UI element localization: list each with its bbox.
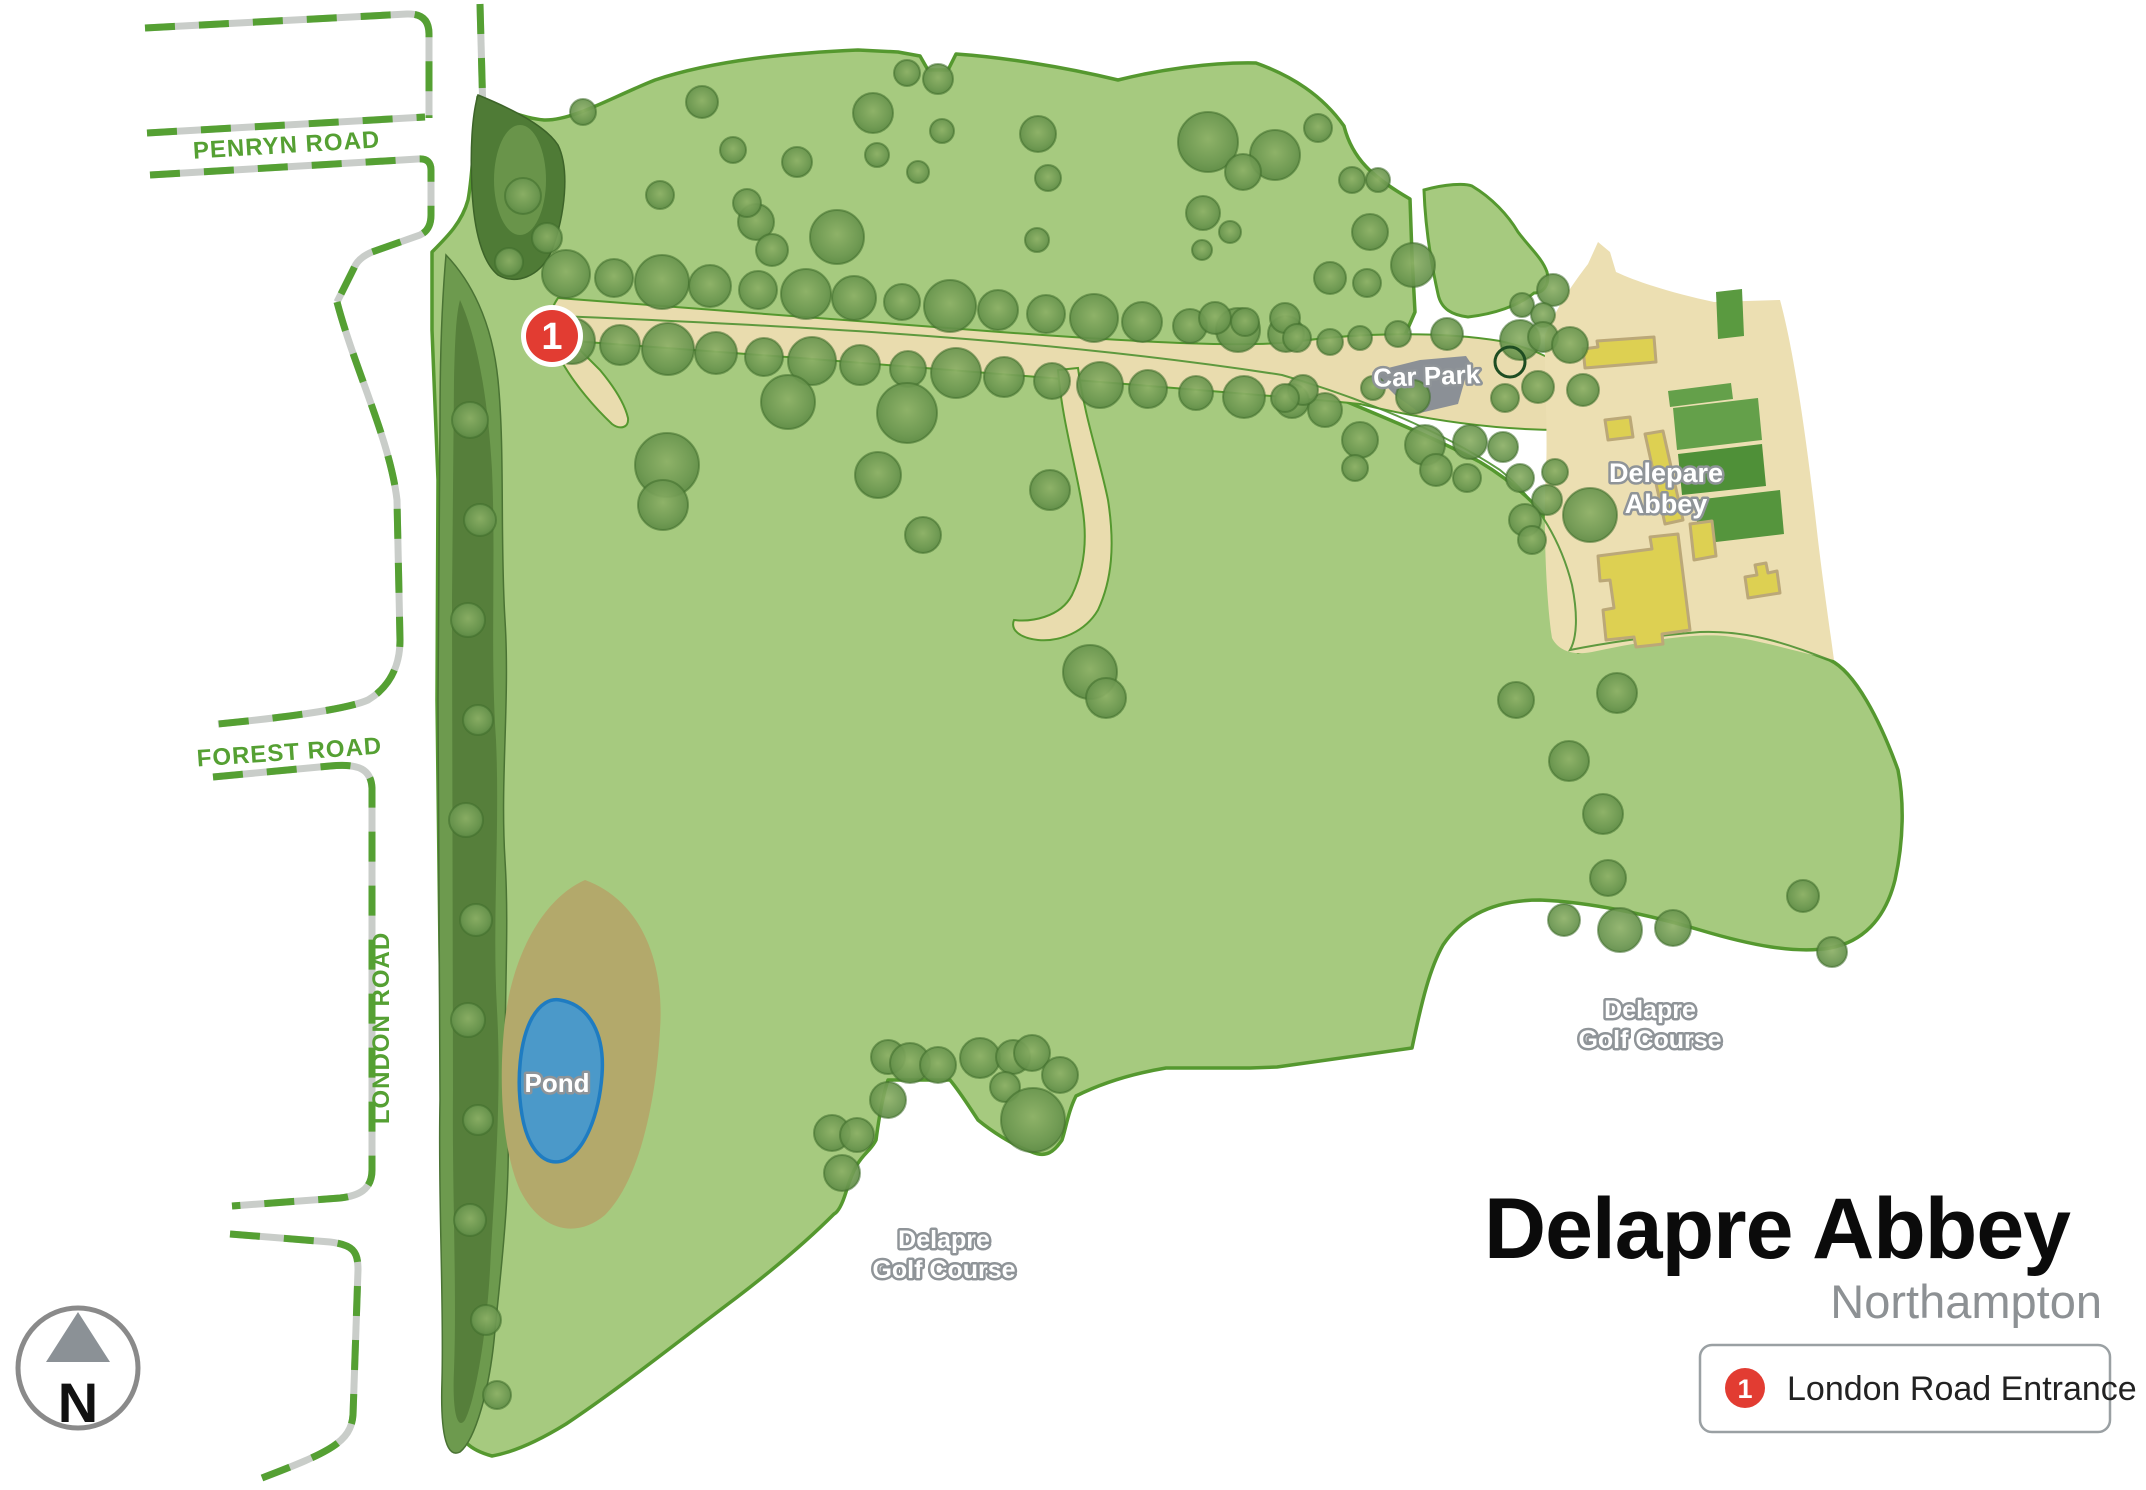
tree-icon bbox=[695, 332, 737, 374]
tree-icon bbox=[1035, 165, 1061, 191]
tree-icon bbox=[1122, 302, 1162, 342]
tree-icon bbox=[463, 705, 493, 735]
map-page: PENRYN ROAD FOREST ROAD LONDON ROAD Car … bbox=[0, 0, 2146, 1490]
tree-icon bbox=[1366, 168, 1390, 192]
tree-icon bbox=[930, 119, 954, 143]
tree-icon bbox=[782, 147, 812, 177]
abbey-label-line1: Delepare bbox=[1609, 458, 1723, 488]
tree-icon bbox=[1420, 454, 1452, 486]
building-small-mid bbox=[1690, 521, 1716, 560]
tree-icon bbox=[1042, 1057, 1078, 1093]
tree-icon bbox=[542, 250, 590, 298]
park-map: PENRYN ROAD FOREST ROAD LONDON ROAD Car … bbox=[0, 0, 2146, 1490]
tree-icon bbox=[905, 517, 941, 553]
tree-icon bbox=[1304, 114, 1332, 142]
tree-icon bbox=[865, 143, 889, 167]
tree-icon bbox=[505, 178, 541, 214]
tree-icon bbox=[1598, 908, 1642, 952]
tree-icon bbox=[635, 255, 689, 309]
legend: 1 London Road Entrance bbox=[1700, 1345, 2137, 1432]
tree-icon bbox=[595, 259, 633, 297]
tree-icon bbox=[960, 1038, 1000, 1078]
tree-icon bbox=[642, 323, 694, 375]
tree-icon bbox=[907, 161, 929, 183]
tree-icon bbox=[1219, 221, 1241, 243]
tree-icon bbox=[1655, 910, 1691, 946]
tree-icon bbox=[686, 86, 718, 118]
tree-icon bbox=[832, 276, 876, 320]
tree-icon bbox=[471, 1305, 501, 1335]
tree-icon bbox=[1225, 154, 1261, 190]
tree-icon bbox=[1342, 422, 1378, 458]
tree-icon bbox=[720, 137, 746, 163]
tree-icon bbox=[840, 1118, 874, 1152]
tree-icon bbox=[483, 1381, 511, 1409]
tree-icon bbox=[1223, 376, 1265, 418]
tree-icon bbox=[1192, 240, 1212, 260]
tree-icon bbox=[646, 181, 674, 209]
tree-icon bbox=[756, 234, 788, 266]
tree-icon bbox=[1453, 464, 1481, 492]
tree-icon bbox=[1070, 294, 1118, 342]
abbey-grounds bbox=[1545, 242, 1834, 660]
tree-icon bbox=[1186, 196, 1220, 230]
tree-icon bbox=[1020, 116, 1056, 152]
garden-strip-north bbox=[1716, 289, 1744, 339]
tree-icon bbox=[1817, 937, 1847, 967]
tree-icon bbox=[877, 383, 937, 443]
car-park-label: Car Park bbox=[1373, 359, 1481, 393]
tree-icon bbox=[1453, 425, 1487, 459]
tree-icon bbox=[1787, 880, 1819, 912]
golf-course-east-label-line1: Delapre bbox=[1604, 996, 1696, 1024]
tree-icon bbox=[853, 93, 893, 133]
tree-icon bbox=[920, 1047, 956, 1083]
tree-icon bbox=[1342, 455, 1368, 481]
tree-icon bbox=[1086, 678, 1126, 718]
golf-course-east-label-line2: Golf Course bbox=[1578, 1026, 1721, 1054]
tree-icon bbox=[1353, 269, 1381, 297]
tree-icon bbox=[1385, 321, 1411, 347]
page-subtitle: Northampton bbox=[1830, 1275, 2102, 1328]
tree-icon bbox=[1518, 526, 1546, 554]
tree-icon bbox=[1537, 274, 1569, 306]
tree-icon bbox=[781, 269, 831, 319]
building-small-west bbox=[1605, 417, 1633, 440]
tree-icon bbox=[1271, 384, 1299, 412]
tree-icon bbox=[1552, 327, 1588, 363]
title-block: Delapre Abbey Northampton bbox=[1484, 1181, 2102, 1328]
tree-icon bbox=[451, 603, 485, 637]
tree-icon bbox=[570, 99, 596, 125]
tree-icon bbox=[452, 402, 488, 438]
tree-icon bbox=[924, 280, 976, 332]
tree-icon bbox=[451, 1003, 485, 1037]
tree-icon bbox=[1488, 432, 1518, 462]
tree-icon bbox=[894, 60, 920, 86]
page-title: Delapre Abbey bbox=[1484, 1181, 2071, 1277]
tree-icon bbox=[1001, 1088, 1065, 1152]
tree-icon bbox=[1034, 363, 1070, 399]
tree-icon bbox=[495, 248, 523, 276]
tree-icon bbox=[978, 290, 1018, 330]
tree-icon bbox=[870, 1082, 906, 1118]
tree-icon bbox=[984, 357, 1024, 397]
tree-icon bbox=[460, 904, 492, 936]
tree-icon bbox=[1030, 470, 1070, 510]
tree-icon bbox=[733, 189, 761, 217]
golf-course-south-label-line1: Delapre bbox=[898, 1226, 990, 1254]
legend-marker-number: 1 bbox=[1737, 1374, 1752, 1404]
tree-icon bbox=[1339, 167, 1365, 193]
tree-icon bbox=[890, 351, 926, 387]
tree-icon bbox=[1498, 682, 1534, 718]
tree-icon bbox=[1590, 860, 1626, 896]
tree-icon bbox=[1352, 214, 1388, 250]
tree-icon bbox=[1348, 326, 1372, 350]
tree-icon bbox=[1506, 464, 1534, 492]
pond-label: Pond bbox=[525, 1068, 590, 1098]
tree-icon bbox=[1199, 302, 1231, 334]
tree-icon bbox=[739, 271, 777, 309]
tree-icon bbox=[1129, 370, 1167, 408]
tree-icon bbox=[1548, 904, 1580, 936]
tree-icon bbox=[824, 1155, 860, 1191]
tree-icon bbox=[1522, 371, 1554, 403]
tree-icon bbox=[1314, 262, 1346, 294]
tree-icon bbox=[1567, 374, 1599, 406]
compass-north-label: N bbox=[58, 1371, 98, 1434]
tree-icon bbox=[840, 345, 880, 385]
tree-icon bbox=[761, 375, 815, 429]
compass: N bbox=[18, 1308, 138, 1434]
tree-icon bbox=[1491, 384, 1519, 412]
tree-icon bbox=[1283, 324, 1311, 352]
tree-icon bbox=[923, 64, 953, 94]
marker-number: 1 bbox=[541, 316, 562, 358]
tree-icon bbox=[463, 1105, 493, 1135]
legend-entry-label: London Road Entrance bbox=[1787, 1370, 2137, 1408]
tree-icon bbox=[532, 223, 562, 253]
tree-icon bbox=[1431, 318, 1463, 350]
tree-icon bbox=[810, 210, 864, 264]
tree-icon bbox=[1583, 794, 1623, 834]
road-labels: PENRYN ROAD FOREST ROAD LONDON ROAD bbox=[192, 126, 395, 1124]
tree-icon bbox=[1563, 488, 1617, 542]
tree-icon bbox=[1025, 228, 1049, 252]
london-road-lines bbox=[213, 302, 400, 1478]
tree-icon bbox=[1391, 243, 1435, 287]
tree-icon bbox=[454, 1204, 486, 1236]
tree-icon bbox=[1231, 308, 1259, 336]
london-road-label: LONDON ROAD bbox=[368, 932, 395, 1124]
tree-icon bbox=[1027, 295, 1065, 333]
tree-icon bbox=[600, 325, 640, 365]
tree-icon bbox=[449, 803, 483, 837]
tree-icon bbox=[745, 338, 783, 376]
tree-icon bbox=[689, 265, 731, 307]
tree-icon bbox=[855, 452, 901, 498]
tree-icon bbox=[464, 504, 496, 536]
tree-icon bbox=[1597, 673, 1637, 713]
abbey-label-line2: Abbey bbox=[1625, 489, 1708, 519]
tree-icon bbox=[638, 480, 688, 530]
tree-icon bbox=[1179, 376, 1213, 410]
golf-course-south-label-line2: Golf Course bbox=[872, 1256, 1015, 1284]
tree-icon bbox=[1077, 362, 1123, 408]
tree-icon bbox=[1317, 329, 1343, 355]
tree-icon bbox=[931, 348, 981, 398]
tree-icon bbox=[1549, 741, 1589, 781]
entrance-marker-icon: 1 bbox=[521, 305, 583, 367]
tree-icon bbox=[1542, 459, 1568, 485]
tree-icon bbox=[884, 284, 920, 320]
